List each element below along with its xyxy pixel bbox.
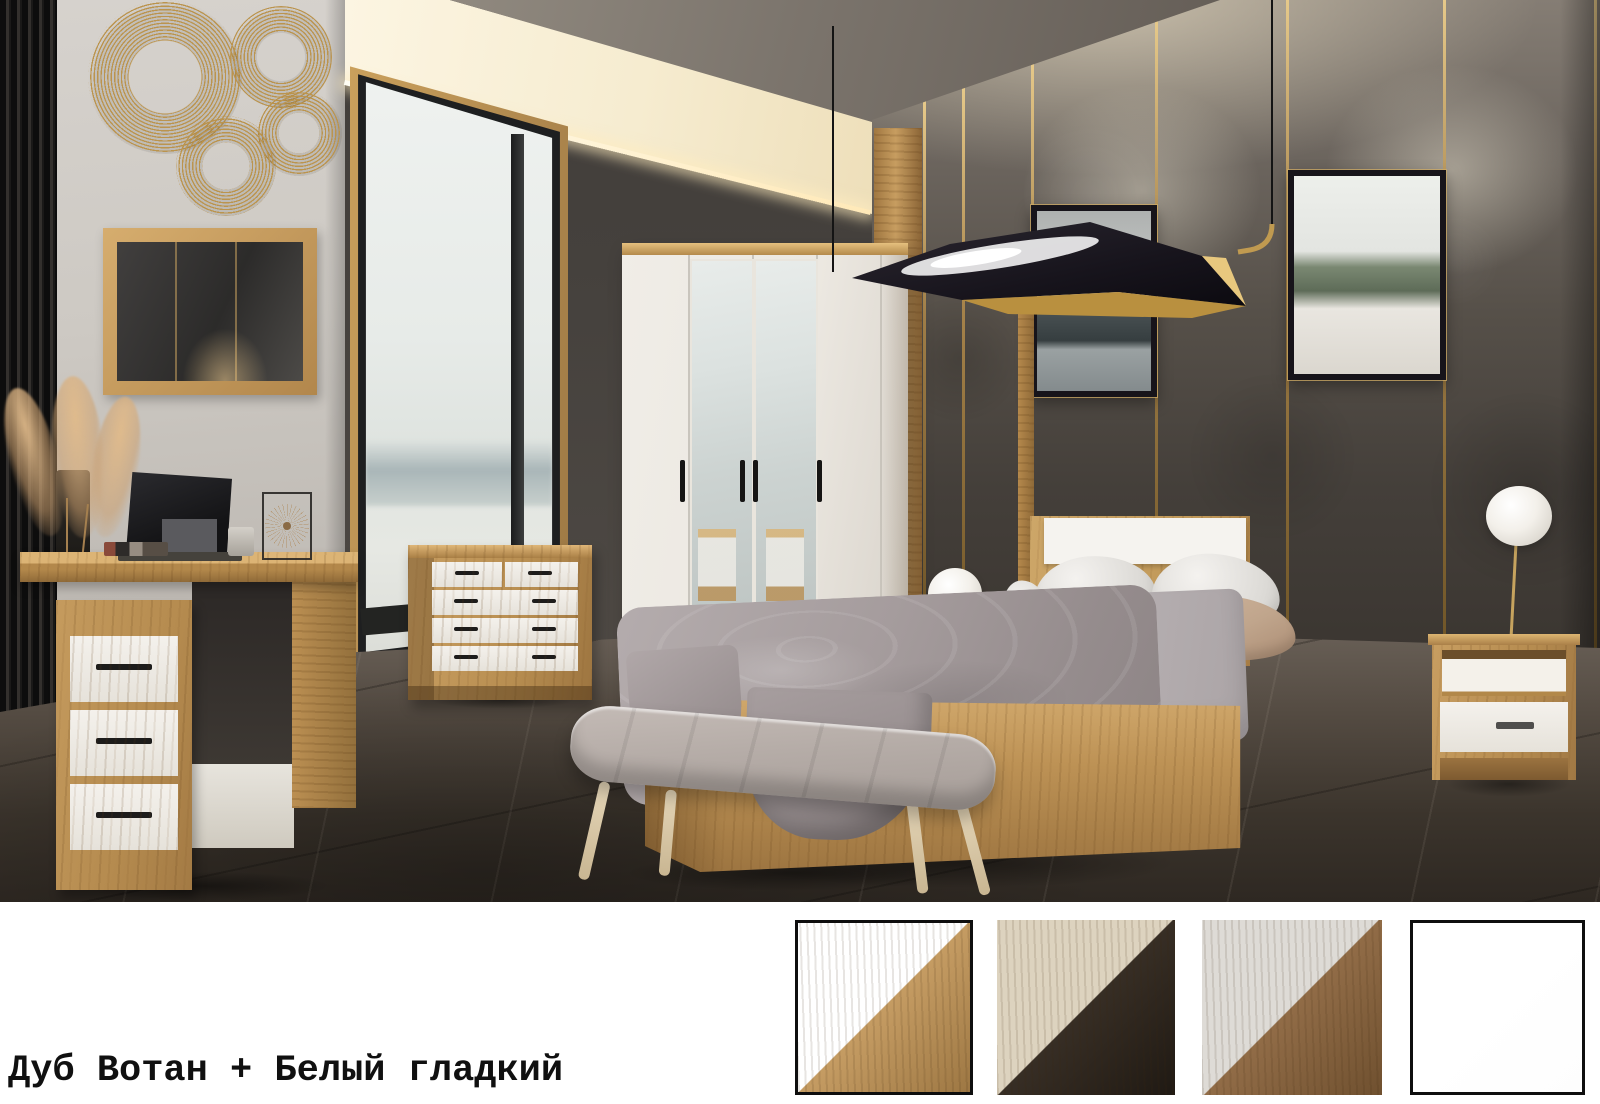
- dresser-oak-top: [408, 545, 592, 558]
- desk-drawer-handle: [96, 812, 152, 818]
- dresser-base-shade: [408, 686, 592, 700]
- nightstand-right-top: [1428, 634, 1580, 645]
- finish-caption: Дуб Вотан + Белый гладкий: [8, 1050, 563, 1092]
- dresser-handle: [454, 655, 478, 659]
- nightstand-open-shelf: [1442, 650, 1566, 696]
- dresser-handle: [455, 571, 479, 575]
- wardrobe-door-handle: [740, 460, 745, 502]
- finish-swatch-white: [1410, 920, 1585, 1095]
- wall-mirror-frame: [103, 228, 317, 395]
- chest-of-drawers: [408, 545, 592, 700]
- under-desk-wall: [188, 764, 294, 848]
- mirror-reflection-line: [175, 242, 177, 381]
- desk-vase: [228, 527, 254, 556]
- dresser-handle: [532, 655, 556, 659]
- dresser-handle: [528, 571, 552, 575]
- wire-dandelion-decor: [262, 492, 312, 560]
- dresser-handle: [532, 599, 556, 603]
- gold-ring-decor: [176, 116, 276, 216]
- desk-drawer-handle: [96, 664, 152, 670]
- caption-band: Дуб Вотан + Белый гладкий: [0, 902, 1600, 1104]
- mirror-reflection-glow: [182, 328, 268, 381]
- dandelion-burst: [265, 504, 309, 548]
- dresser-side-shade: [408, 558, 434, 700]
- pendant-gold-elbow: [1238, 224, 1272, 252]
- finish-swatch-white-oak: [795, 920, 973, 1095]
- finish-swatch-grey-walnut: [1202, 920, 1382, 1095]
- wall-mirror-glass: [117, 242, 303, 381]
- nightstand-drawer-handle: [1496, 722, 1534, 729]
- pendant-shade: [852, 222, 1246, 306]
- framed-picture-right: [1288, 170, 1446, 380]
- mirror-reflection-dresser: [766, 529, 804, 601]
- nightstand-oak-base: [1440, 758, 1568, 780]
- window-view-hills: [365, 440, 552, 507]
- table-lamp-right-ball: [1486, 486, 1552, 546]
- desk-side-panel: [292, 582, 356, 808]
- pampas-stem: [66, 498, 68, 560]
- wardrobe-door-handle: [817, 460, 822, 502]
- wardrobe-door-handle: [680, 460, 685, 502]
- desk-drawer-unit: [56, 600, 192, 890]
- desk-drawer-handle: [96, 738, 152, 744]
- mirror-reflection-dresser: [698, 529, 736, 601]
- wardrobe-door-handle: [753, 460, 758, 502]
- dresser-handle: [454, 627, 478, 631]
- under-desk-shadow: [192, 582, 292, 764]
- desk-books: [104, 542, 168, 556]
- finish-swatch-cream-wenge: [997, 920, 1175, 1095]
- wall-edge-shadow: [1560, 0, 1600, 652]
- pendant-lamp: [800, 0, 1280, 340]
- dresser-handle: [532, 627, 556, 631]
- nightstand-right: [1428, 634, 1580, 780]
- laptop-screen-reflection: [162, 519, 217, 552]
- bedroom-render-photo: [0, 0, 1600, 902]
- dresser-handle: [454, 599, 478, 603]
- picture-art-forest-light: [1294, 176, 1440, 374]
- wardrobe-mirror-door: [690, 259, 754, 615]
